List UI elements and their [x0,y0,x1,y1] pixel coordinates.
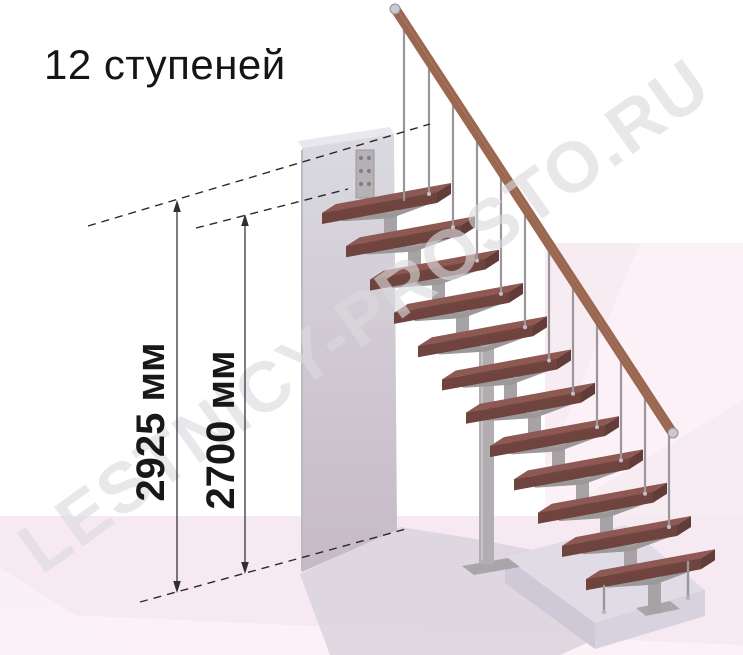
support-arm [542,447,559,449]
baluster-connector [643,492,647,496]
support-arm [398,247,415,249]
baluster-connector [619,458,623,462]
support-arm [638,580,655,582]
support-arm [566,480,583,482]
support-arm [422,281,439,283]
baluster-connector [427,192,431,196]
wall-bracket-plate [356,150,374,198]
baluster-connector [595,425,599,429]
wall-bracket [356,150,374,198]
bracket-hole [359,169,363,173]
handrail-top-cap [390,4,400,14]
bracket-hole [359,156,363,160]
baluster-connector [475,259,479,263]
baluster-connector [451,225,455,229]
support-arm [374,214,391,216]
support-arm [470,347,487,349]
staircase-diagram: LESTNICY-PROSTO.RU 2925 мм 2700 мм 12 ст… [0,0,743,655]
baluster-connector [499,292,503,296]
scene-illustration [0,0,743,655]
support-arm [494,381,511,383]
post-foot [602,610,606,614]
baluster-connector [547,359,551,363]
support-arm [590,514,607,516]
bracket-hole [359,182,363,186]
bracket-hole [367,169,371,173]
bracket-hole [367,182,371,186]
page-title: 12 ступеней [44,42,286,88]
post-foot [686,596,690,600]
support-arm [518,414,535,416]
bracket-hole [367,156,371,160]
baluster-connector [523,325,527,329]
wall-column [298,127,397,572]
baluster-connector [571,392,575,396]
support-arm [614,547,631,549]
handrail-end-cap [668,428,678,438]
support-arm [446,314,463,316]
baluster-connector [667,525,671,529]
